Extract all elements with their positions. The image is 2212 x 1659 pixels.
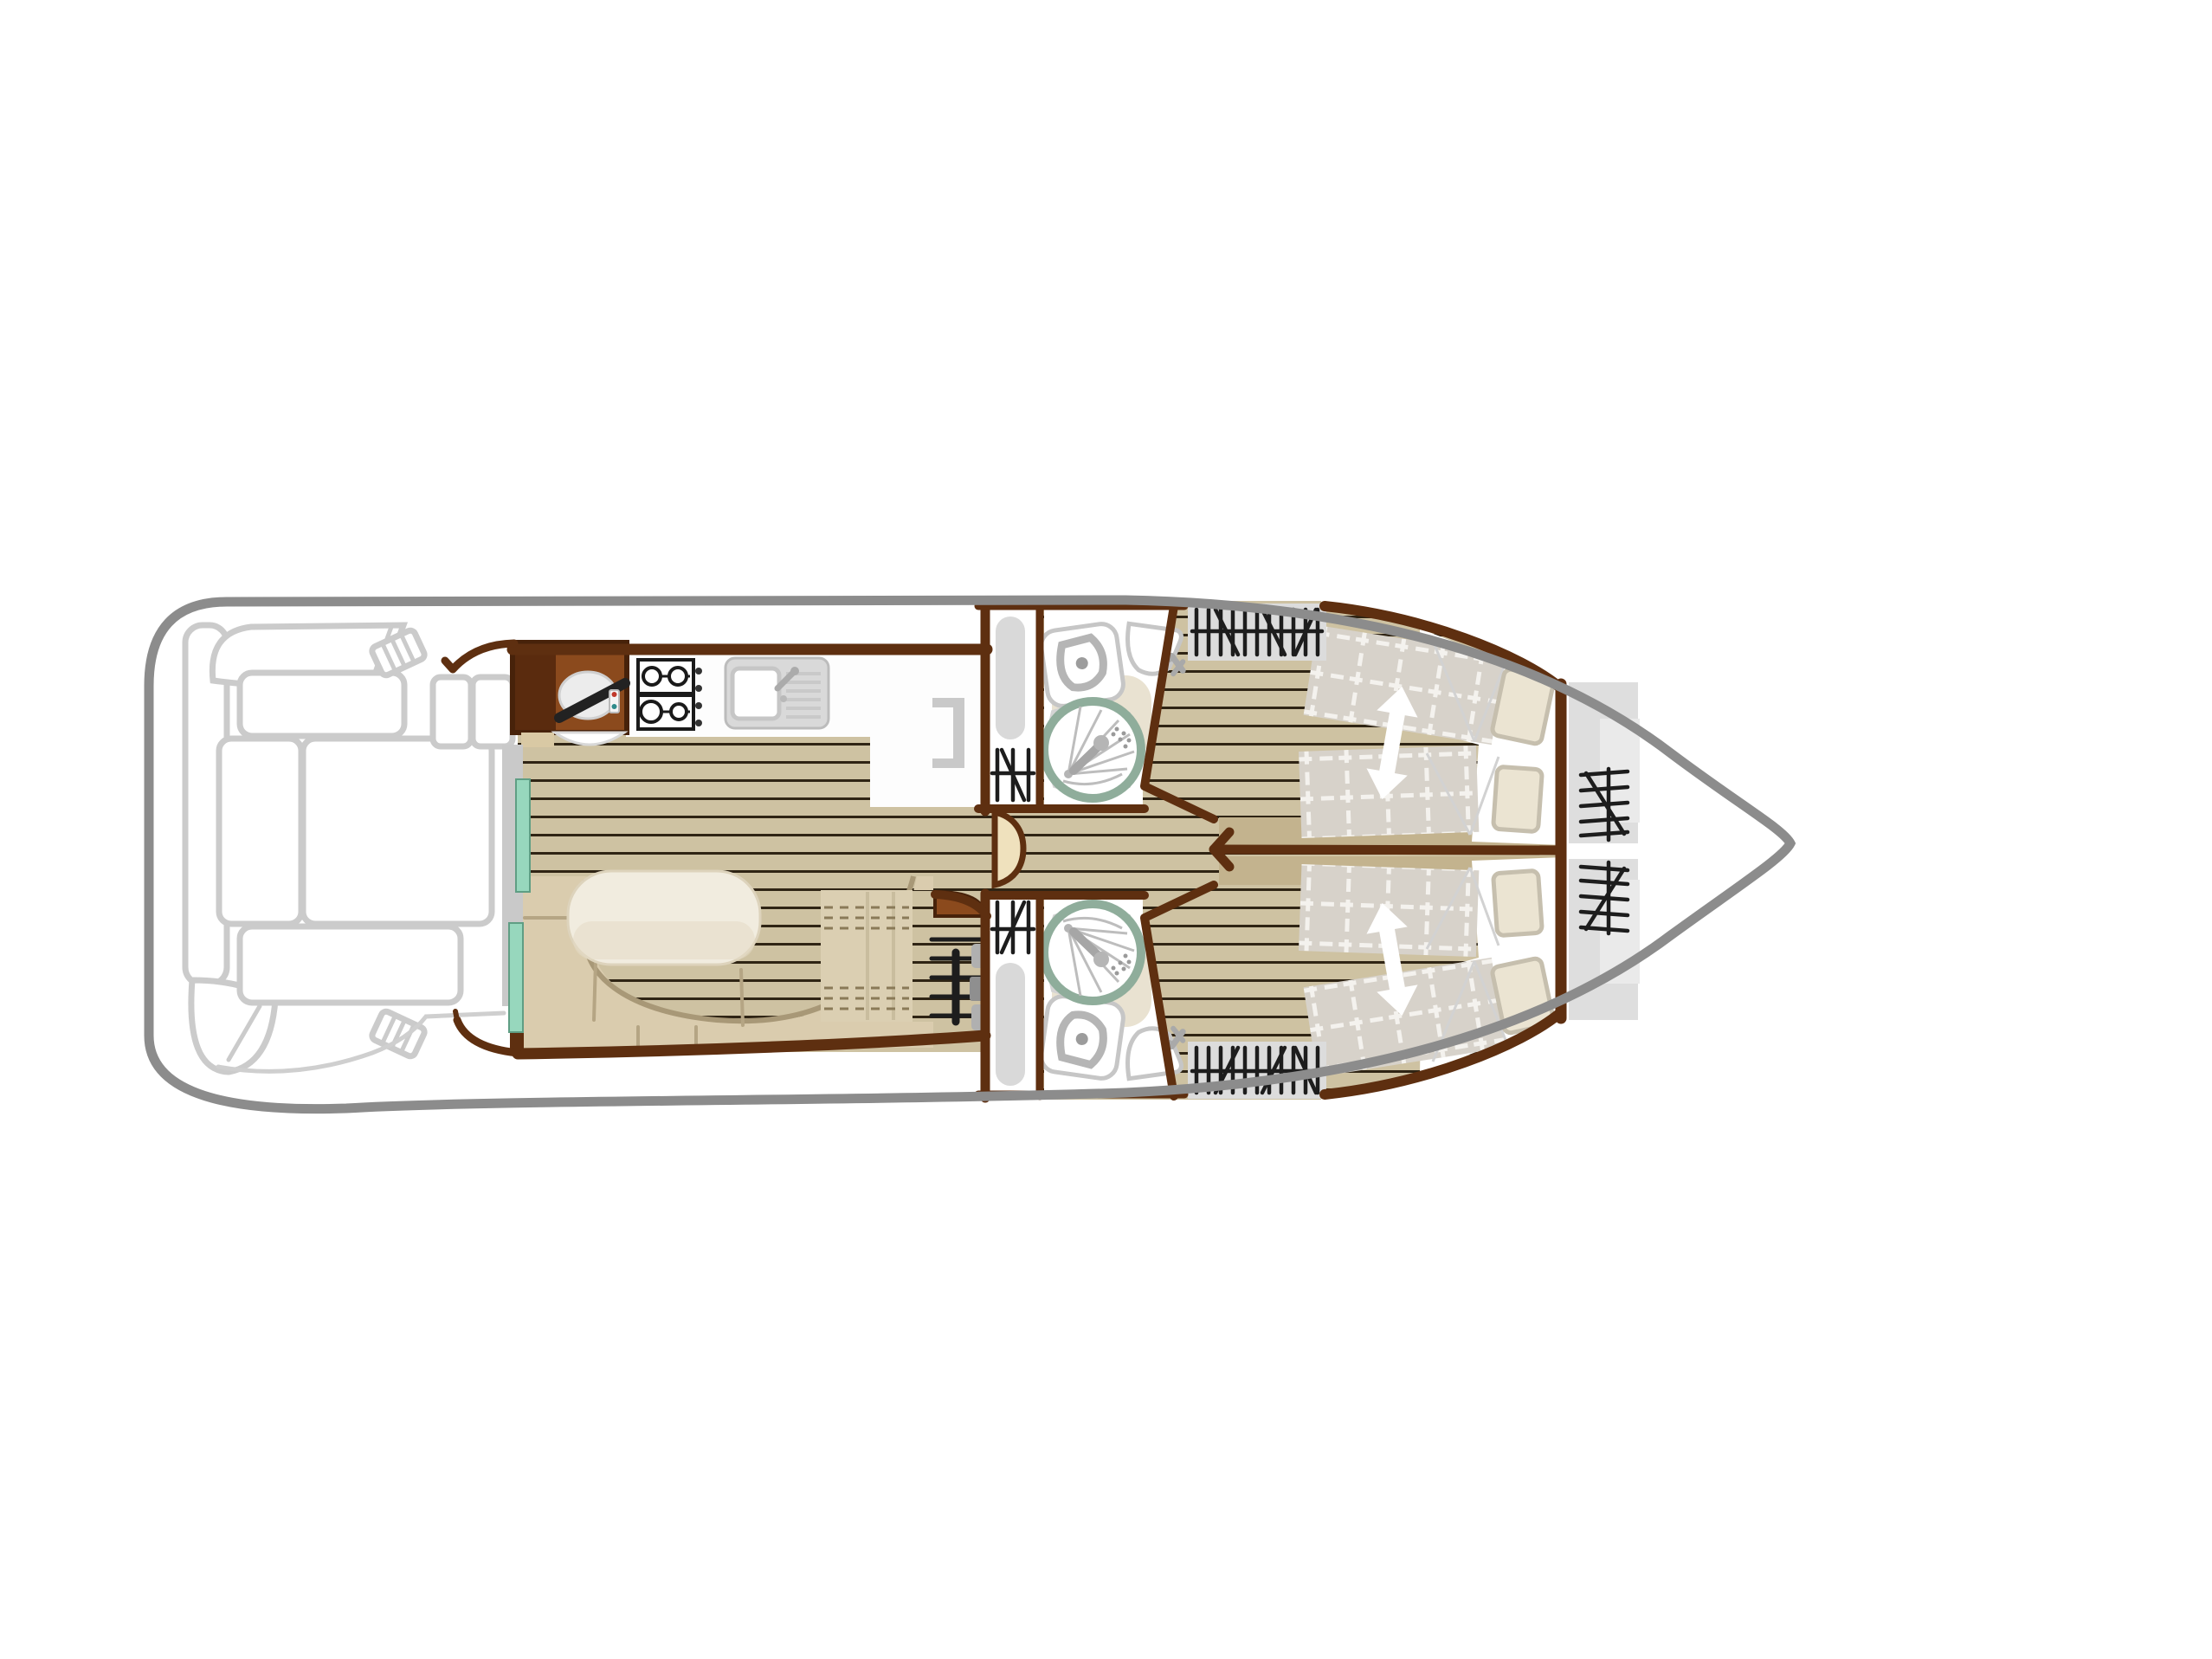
steering-console: Steering console [513,642,627,747]
stove-icon [638,660,702,729]
counter [870,654,985,807]
drawer-unit [821,890,913,1022]
deck-bench [240,926,461,1003]
steps-icon [433,677,513,746]
deck-bench [219,739,301,924]
helm-step [521,733,554,747]
table-shade [573,921,755,959]
boat-floor-plan: Boat deck floor plan [0,0,2212,1659]
floor-strip [913,890,933,1022]
sliding-door-icon [509,923,523,1032]
deck-table [303,739,492,924]
sliding-door-icon [516,779,530,892]
sink-icon [726,658,829,728]
deck-bench [240,673,404,736]
boat-floor-plan-page: Boat deck floor plan [0,0,2212,1659]
